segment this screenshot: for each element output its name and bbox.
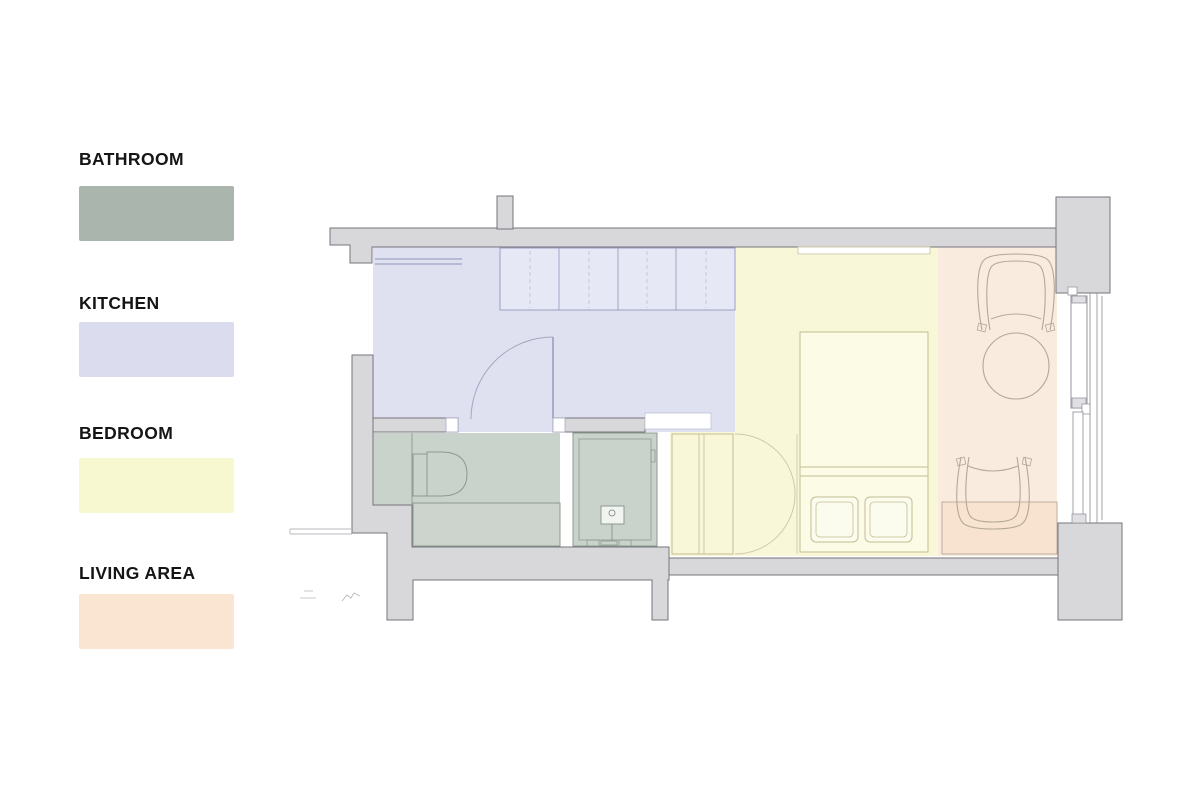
wall-shelf	[798, 247, 930, 254]
window-cap-bottom	[1072, 514, 1086, 523]
pillow-right	[865, 497, 912, 542]
kitchen-bath-wall-right	[553, 418, 645, 432]
window-cap-top	[1072, 296, 1086, 303]
door-jamb-left	[446, 418, 458, 432]
column-notch	[1068, 287, 1077, 295]
pillow-left	[811, 497, 858, 542]
bottom-wall-right	[669, 558, 1058, 575]
upper-cabinets	[500, 248, 735, 310]
window-sash-lower	[1073, 412, 1083, 518]
window-frame-lines	[1090, 293, 1102, 523]
shower-mixer-box	[601, 506, 624, 524]
shower-area	[573, 433, 657, 546]
faint-wall-mark	[300, 591, 316, 598]
column-top-right	[1056, 197, 1110, 293]
break-mark	[342, 593, 360, 601]
floor-plan-svg	[0, 0, 1199, 800]
window-sash-upper	[1071, 296, 1087, 408]
door-jamb-right	[553, 418, 565, 432]
neighbor-wall-lines	[290, 529, 352, 534]
desk	[942, 502, 1057, 554]
column-bottom-right	[1058, 523, 1122, 620]
vanity-counter	[413, 503, 560, 546]
kitchen-bath-wall-left	[373, 418, 458, 432]
floor-plan-page: BATHROOM KITCHEN BEDROOM LIVING AREA	[0, 0, 1199, 800]
top-wall-stub	[497, 196, 513, 229]
cased-opening	[645, 413, 711, 429]
wardrobe-nook-area	[670, 432, 735, 556]
